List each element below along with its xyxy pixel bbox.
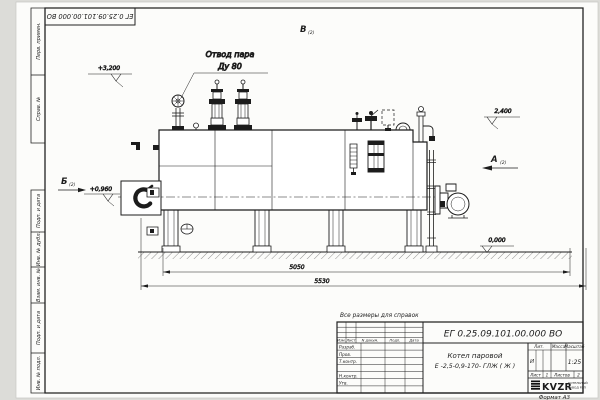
margin-label: Подп. и дата	[36, 194, 42, 228]
callout-text-line2: Ду 80	[217, 62, 242, 71]
sheet-value: 1	[546, 373, 549, 378]
sheet-header: Лист	[529, 373, 541, 378]
role-tcontrol: Т.контр.	[339, 359, 357, 364]
role-developer: Разраб.	[339, 345, 355, 350]
col-header-list: Лист	[345, 339, 356, 343]
elevation-value: +3,200	[98, 65, 120, 72]
scale-value: 1:25	[568, 359, 582, 366]
view-letter: Б	[61, 177, 68, 187]
sheets-header: Листов	[553, 373, 570, 378]
margin-label: Инв. № дубл.	[36, 232, 42, 266]
elevation-value: 0,000	[488, 237, 505, 244]
view-sheet-ref: (2)	[308, 30, 315, 36]
margin-label: Инв. № подл.	[36, 356, 42, 391]
margin-label: Подп. и дата	[36, 311, 42, 345]
scanned-drawing-sheet: Перв. примен. Справ. № Подп. и дата Инв.…	[0, 0, 600, 400]
lit-value: И	[530, 359, 534, 365]
ground-line	[138, 252, 572, 259]
view-letter: А	[490, 155, 498, 165]
logo-subtext-1: КОТЕЛЬНЫЙ	[568, 380, 588, 385]
scale-header: Масштаб	[565, 344, 585, 349]
logo-subtext-2: ЗАВОД РЭП	[568, 386, 586, 390]
product-name-line2: Е -2,5-0,9-170- ГЛЖ ( Ж )	[435, 363, 515, 370]
product-name-line1: Котел паровой	[448, 352, 503, 360]
elevation-value: +0,960	[90, 186, 112, 193]
role-checker: Пров.	[339, 352, 351, 357]
blowdown-fitting	[181, 224, 193, 234]
sheets-value: 2	[577, 373, 580, 378]
margin-label: Перв. примен.	[36, 22, 42, 60]
margin-label: Взам. инв. №	[36, 268, 42, 302]
dimension-value: 5530	[314, 278, 329, 285]
dimension-value: 5050	[289, 264, 304, 271]
callout-text-line1: Отвод пара	[206, 50, 255, 59]
format-label: Формат А3	[539, 395, 571, 400]
col-header-doc: N докум.	[362, 339, 379, 343]
view-sheet-ref: (2)	[500, 160, 507, 166]
col-header-sign: Подп.	[390, 339, 401, 343]
corner-stamp-text: ЕГ 0.25.09.101.00.000 ВО	[47, 12, 134, 20]
boiler-general-view-drawing: Перв. примен. Справ. № Подп. и дата Инв.…	[0, 0, 600, 400]
mass-header: Масса	[552, 344, 566, 349]
boiler-body	[159, 130, 427, 210]
col-header-date: Дата	[408, 339, 418, 343]
water-level-gauge-2	[368, 141, 384, 172]
elevation-value: 2,400	[494, 108, 511, 115]
doc-number: ЕГ 0.25.09.101.00.000 ВО	[444, 330, 562, 340]
margin-label: Справ. №	[36, 97, 42, 121]
reference-note: Все размеры для справок	[340, 313, 419, 319]
role-ncontrol: Н.контр.	[339, 373, 358, 378]
col-header-izm: Изм.	[337, 339, 345, 343]
role-approver: Утв.	[339, 381, 348, 386]
view-sheet-ref: (2)	[69, 182, 76, 188]
view-letter: В	[300, 25, 306, 35]
burner	[121, 181, 161, 215]
lit-header: Лит.	[533, 344, 544, 349]
motor-icon	[447, 193, 469, 215]
